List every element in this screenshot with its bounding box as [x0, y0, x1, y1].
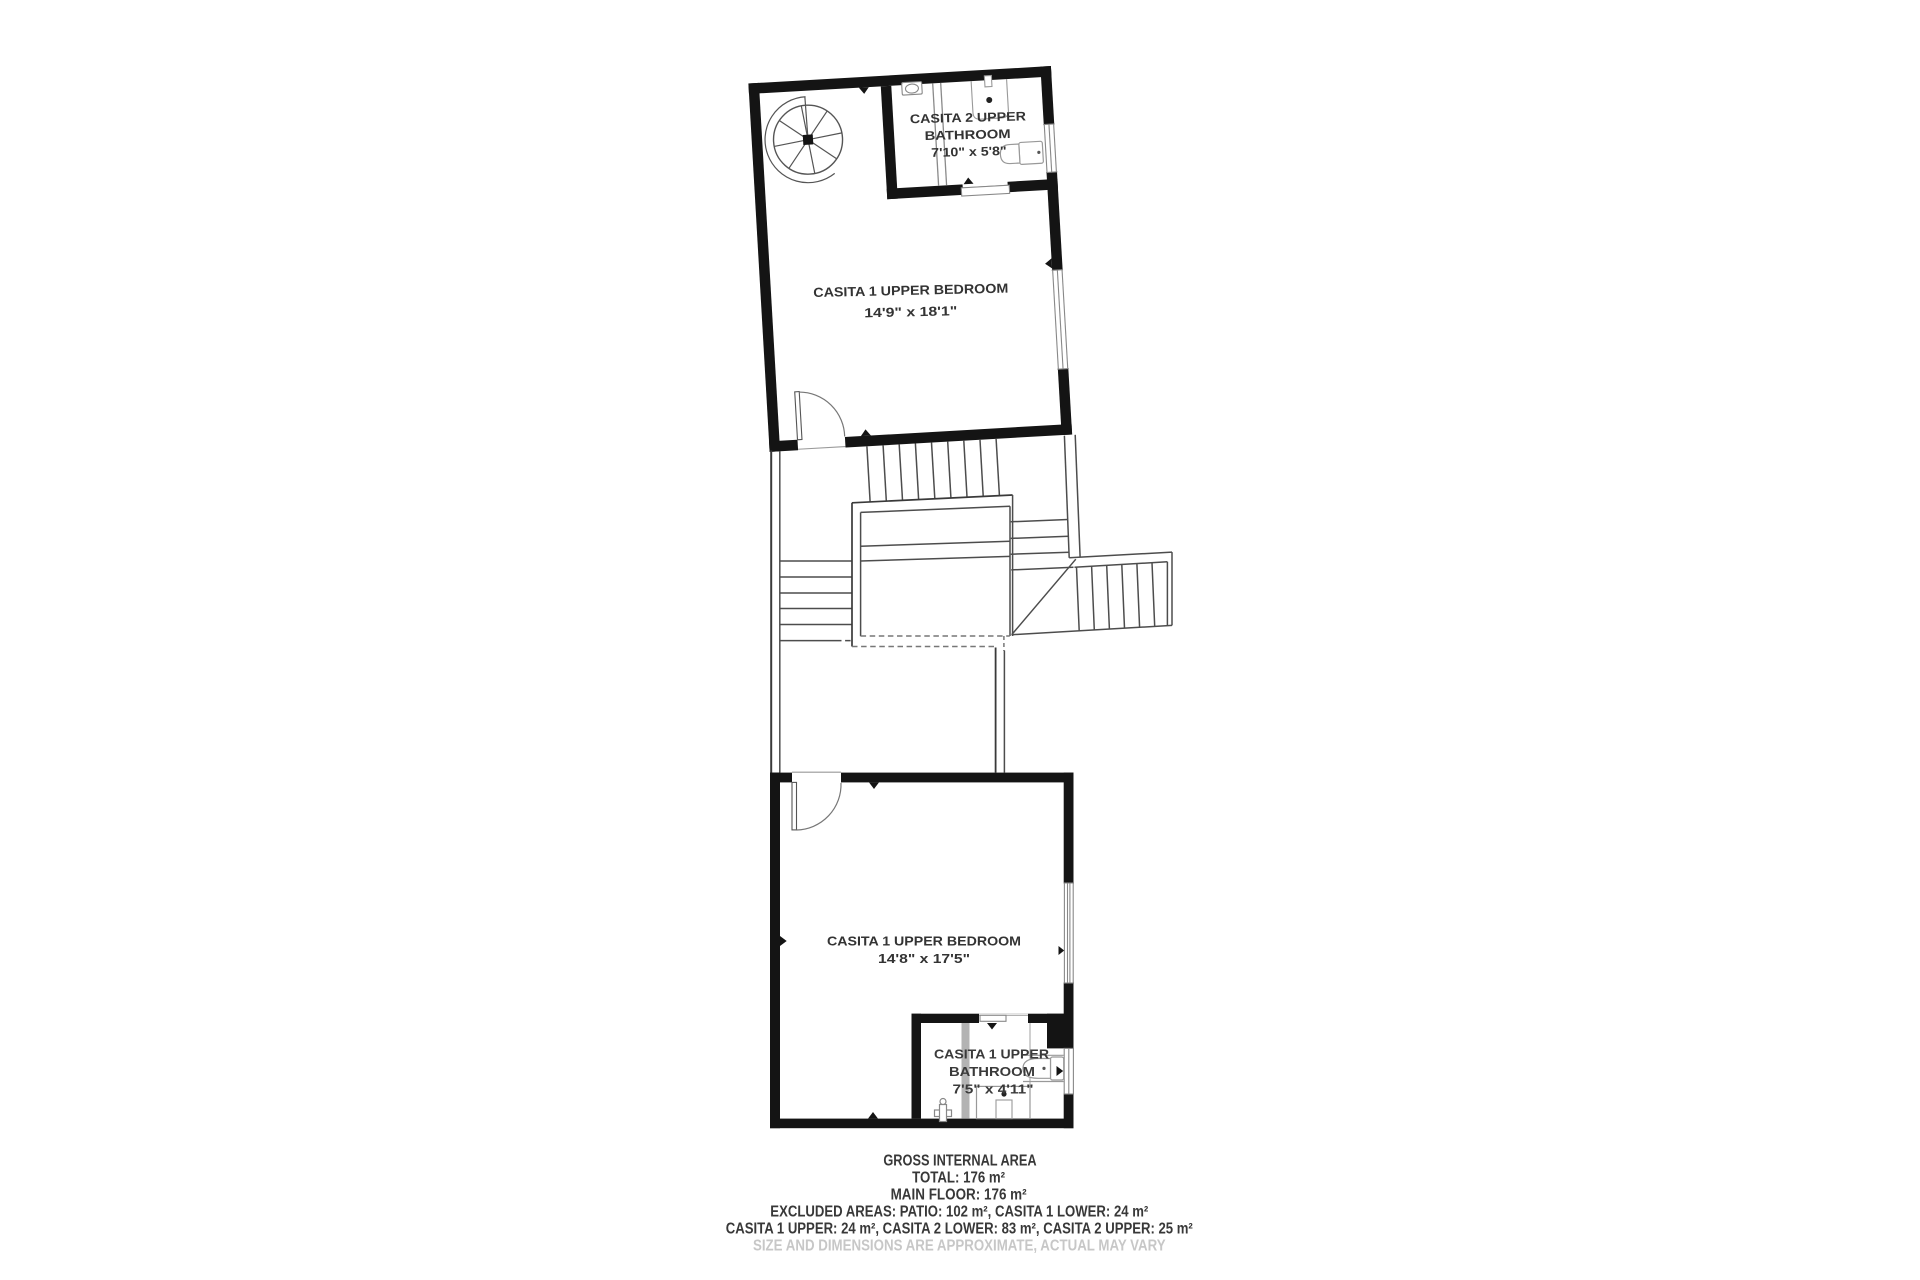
svg-text:CASITA 1 UPPER BEDROOM: CASITA 1 UPPER BEDROOM — [827, 933, 1021, 948]
svg-text:CASITA 2 UPPER: CASITA 2 UPPER — [910, 109, 1026, 126]
svg-text:14'8" x 17'5": 14'8" x 17'5" — [878, 951, 970, 966]
svg-text:TOTAL: 176 m²: TOTAL: 176 m² — [912, 1170, 1005, 1187]
svg-text:MAIN FLOOR: 176 m²: MAIN FLOOR: 176 m² — [891, 1187, 1027, 1204]
svg-text:CASITA 1 UPPER: 24 m², CASITA: CASITA 1 UPPER: 24 m², CASITA 2 LOWER: 8… — [726, 1221, 1193, 1238]
svg-text:14'9" x 18'1": 14'9" x 18'1" — [864, 303, 957, 320]
svg-text:7'5" x 4'11": 7'5" x 4'11" — [953, 1082, 1034, 1096]
svg-text:SIZE AND DIMENSIONS ARE APPROX: SIZE AND DIMENSIONS ARE APPROXIMATE, ACT… — [753, 1238, 1166, 1255]
svg-text:CASITA 1 UPPER: CASITA 1 UPPER — [934, 1047, 1049, 1061]
svg-text:7'10" x 5'8": 7'10" x 5'8" — [931, 144, 1007, 160]
svg-text:EXCLUDED AREAS: PATIO: 102 m²,: EXCLUDED AREAS: PATIO: 102 m², CASITA 1 … — [770, 1204, 1148, 1221]
svg-text:GROSS INTERNAL AREA: GROSS INTERNAL AREA — [883, 1153, 1036, 1170]
svg-text:BATHROOM: BATHROOM — [949, 1065, 1035, 1079]
svg-text:BATHROOM: BATHROOM — [924, 127, 1010, 143]
